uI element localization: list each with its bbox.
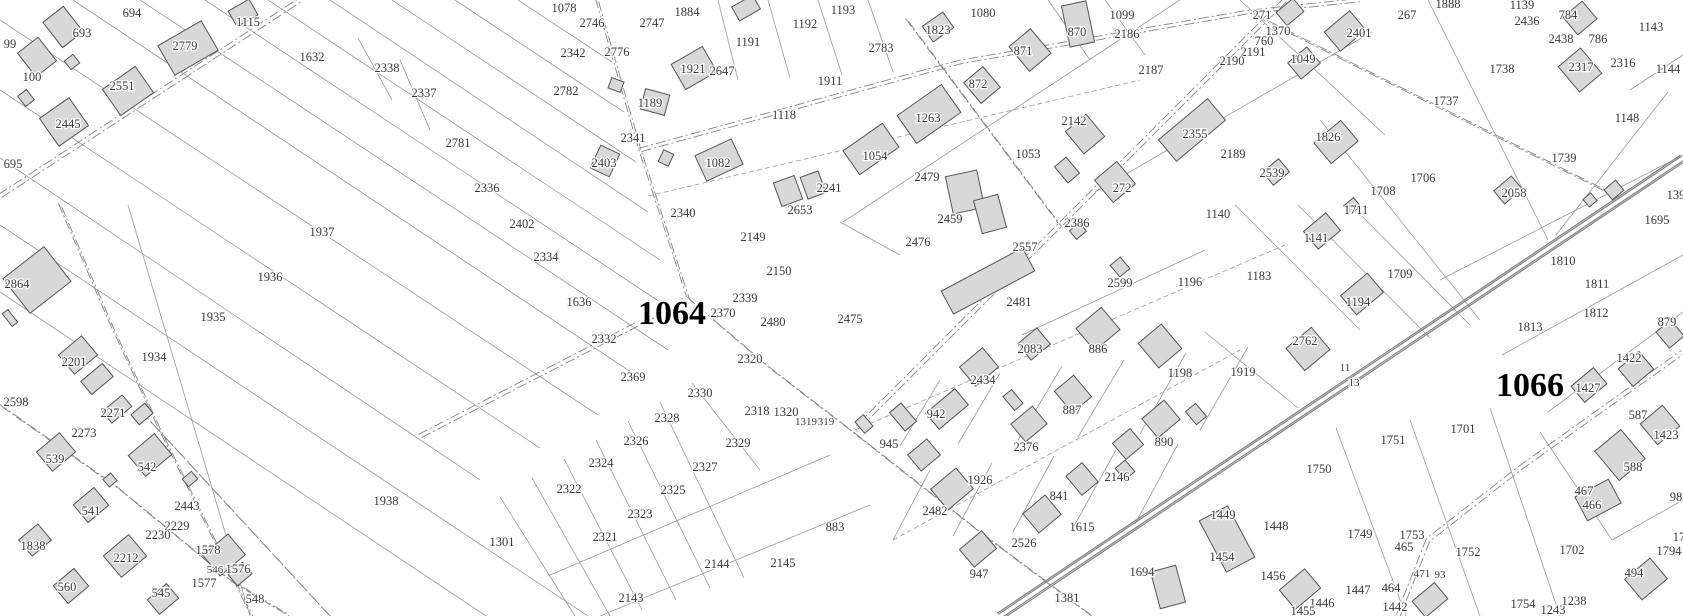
parcel-number-label: 2271 (101, 406, 126, 420)
block-number-label: 1066 (1496, 367, 1564, 404)
parcel-number-label: 2526 (1012, 536, 1037, 550)
parcel-number-label: 2332 (592, 332, 617, 346)
parcel-number-label: 871 (1014, 44, 1033, 58)
parcel-number-label: 2747 (640, 16, 665, 30)
parcel-number-label: 2230 (146, 528, 171, 542)
parcel-number-label: 272 (1113, 181, 1132, 195)
parcel-number-label: 886 (1089, 342, 1108, 356)
parcel-number-label: 786 (1589, 32, 1608, 46)
parcel-number-label: 2325 (661, 483, 686, 497)
parcel-number-label: 2438 (1549, 32, 1574, 46)
parcel-number-label: 100 (23, 70, 42, 84)
parcel-number-label: 1823 (926, 23, 951, 37)
parcel-number-label: 471 (1414, 568, 1431, 580)
parcel-number-label: 2149 (741, 230, 766, 244)
parcel-number-label: 2323 (628, 507, 653, 521)
parcel-number-label: 2339 (733, 291, 758, 305)
cadastral-map-canvas[interactable]: 6946931115992779100163223382551244569510… (0, 0, 1683, 616)
parcel-number-label: 2143 (619, 591, 644, 605)
parcel-number-label: 2320 (738, 352, 763, 366)
parcel-number-label: 2327 (693, 460, 718, 474)
parcel-number-label: 1455 (1291, 604, 1316, 616)
parcel-number-label: 2318 (745, 404, 770, 418)
parcel-number-label: 2328 (655, 411, 680, 425)
parcel-number-label: 2142 (1062, 114, 1087, 128)
parcel-number-label: 587 (1629, 408, 1648, 422)
parcel-number-label: 841 (1050, 489, 1069, 503)
parcel-number-label: 1301 (490, 535, 515, 549)
parcel-number-label: 2481 (1007, 295, 1032, 309)
parcel-number-label: 1141 (1304, 231, 1329, 245)
parcel-number-label: 2539 (1260, 166, 1285, 180)
parcel-number-label: 1454 (1210, 550, 1236, 564)
parcel-number-label: 1926 (968, 473, 993, 487)
parcel-number-label: 1938 (374, 494, 399, 508)
parcel-number-label: 1238 (1562, 594, 1587, 608)
parcel-number-label: 2190 (1220, 54, 1245, 68)
parcel-number-label: 784 (1559, 8, 1579, 22)
parcel-number-label: 2401 (1347, 26, 1372, 40)
parcel-number-label: 1737 (1434, 94, 1459, 108)
parcel-number-label: 1811 (1585, 277, 1610, 291)
parcel-number-label: 539 (46, 452, 65, 466)
parcel-number-label: 2782 (554, 84, 579, 98)
parcel-number-label: 2783 (869, 41, 894, 55)
parcel-number-label: 2329 (726, 436, 751, 450)
parcel-number-label: 1911 (818, 74, 843, 88)
parcel-number-label: 1578 (196, 543, 221, 557)
parcel-number-label: 1935 (201, 310, 226, 324)
parcel-number-label: 1263 (916, 111, 941, 125)
parcel-number-label: 1615 (1070, 520, 1095, 534)
parcel-number-label: 548 (246, 592, 265, 606)
parcel-number-label: 464 (1382, 581, 1402, 595)
parcel-number-label: 2864 (5, 277, 31, 291)
parcel-number-label: 2316 (1611, 56, 1636, 70)
parcel-number-label: 2201 (62, 355, 87, 369)
parcel-number-label: 2273 (72, 426, 97, 440)
parcel-number-label: 1423 (1654, 428, 1679, 442)
parcel-number-label: 1706 (1411, 171, 1436, 185)
parcel-number-label: 1198 (1168, 366, 1193, 380)
parcel-number-label: 760 (1255, 34, 1274, 48)
parcel-number-label: 93 (1435, 569, 1447, 581)
parcel-number-label: 2342 (561, 46, 586, 60)
parcel-number-label: 1191 (736, 35, 761, 49)
parcel-number-label: 1632 (300, 50, 325, 64)
parcel-number-label: 267 (1398, 8, 1417, 22)
parcel-number-label: 1708 (1371, 184, 1396, 198)
parcel-number-label: 1636 (567, 295, 592, 309)
parcel-number-label: 1702 (1560, 543, 1585, 557)
parcel-number-label: 2479 (915, 170, 940, 184)
parcel-number-label: 1838 (21, 539, 46, 553)
parcel-number-label: 2330 (688, 386, 713, 400)
parcel-number-label: 17 (1673, 530, 1683, 544)
parcel-number-label: 1937 (310, 225, 335, 239)
parcel-number-label: 2144 (705, 557, 731, 571)
parcel-number-label: 1709 (1388, 267, 1413, 281)
cadastral-map-svg: 6946931115992779100163223382551244569510… (0, 0, 1683, 616)
parcel-number-label: 1754 (1511, 597, 1537, 611)
parcel-number-label: 883 (826, 520, 845, 534)
parcel-number-label: 2434 (971, 373, 997, 387)
parcel-number-label: 1751 (1381, 433, 1406, 447)
parcel-number-label: 2340 (671, 206, 696, 220)
parcel-number-label: 467 (1575, 484, 1594, 498)
parcel-number-label: 11 (1340, 362, 1351, 374)
parcel-number-label: 2443 (175, 499, 200, 513)
parcel-number-label: 2324 (589, 456, 615, 470)
parcel-number-label: 2145 (771, 556, 796, 570)
parcel-number-label: 1118 (772, 108, 796, 122)
parcel-number-label: 1442 (1383, 600, 1408, 614)
parcel-number-label: 942 (927, 407, 946, 421)
parcel-number-label: 1576 (226, 562, 251, 576)
parcel-number-label: 2482 (923, 504, 948, 518)
parcel-number-label: 1054 (863, 149, 889, 163)
parcel-number-label: 1739 (1552, 151, 1577, 165)
parcel-number-label: 1794 (1657, 544, 1683, 558)
parcel-number-label: 1078 (552, 1, 577, 15)
parcel-number-label: 1812 (1584, 306, 1609, 320)
parcel-number-label: 1826 (1316, 130, 1341, 144)
parcel-number-label: 1888 (1436, 0, 1461, 11)
parcel-number-label: 2187 (1139, 63, 1164, 77)
parcel-number-label: 695 (4, 157, 23, 171)
parcel-number-label: 98 (1670, 490, 1683, 504)
parcel-number-label: 2322 (557, 482, 582, 496)
parcel-number-label: 947 (970, 567, 989, 581)
parcel-number-label: 1449 (1211, 508, 1236, 522)
parcel-number-label: 2476 (906, 235, 931, 249)
parcel-number-label: 2779 (173, 39, 198, 53)
parcel-number-label: 2459 (938, 212, 963, 226)
parcel-number-label: 2336 (475, 181, 500, 195)
parcel-number-label: 2083 (1018, 342, 1043, 356)
parcel-number-label: 2058 (1502, 186, 1527, 200)
parcel-number-label: 2746 (580, 16, 605, 30)
parcel-number-label: 1319 (795, 416, 818, 428)
parcel-number-label: 2598 (4, 395, 29, 409)
parcel-number-label: 2341 (621, 131, 646, 145)
parcel-number-label: 1456 (1261, 569, 1286, 583)
parcel-number-label: 694 (123, 6, 143, 20)
parcel-number-label: 1738 (1490, 62, 1515, 76)
parcel-number-label: 13 (1349, 377, 1361, 389)
parcel-number-label: 1694 (1130, 565, 1156, 579)
parcel-number-label: 1695 (1645, 213, 1670, 227)
parcel-number-label: 1448 (1264, 519, 1289, 533)
parcel-number-label: 2557 (1013, 240, 1038, 254)
parcel-number-label: 945 (880, 437, 899, 451)
parcel-number-label: 879 (1658, 315, 1677, 329)
parcel-number-label: 2150 (767, 264, 792, 278)
parcel-number-label: 2337 (412, 86, 437, 100)
parcel-number-label: 541 (82, 504, 101, 518)
parcel-number-label: 1936 (258, 270, 283, 284)
parcel-number-label: 2334 (534, 250, 560, 264)
parcel-number-label: 887 (1063, 403, 1082, 417)
parcel-number-label: 1080 (971, 6, 996, 20)
parcel-number-label: 1082 (706, 156, 731, 170)
parcel-number-label: 2776 (605, 45, 630, 59)
block-number-label: 1064 (638, 295, 706, 332)
parcel-number-label: 1183 (1247, 269, 1272, 283)
parcel-number-label: 2445 (56, 117, 81, 131)
parcel-number-label: 693 (73, 26, 92, 40)
parcel-number-label: 542 (138, 460, 157, 474)
parcel-number-label: 890 (1155, 435, 1174, 449)
parcel-number-label: 1749 (1348, 527, 1373, 541)
parcel-number-label: 1577 (192, 576, 217, 590)
parcel-number-label: 2376 (1014, 440, 1039, 454)
parcel-number-label: 319 (818, 416, 835, 428)
parcel-number-label: 99 (4, 37, 17, 51)
parcel-number-label: 2386 (1065, 216, 1090, 230)
parcel-number-label: 2369 (621, 370, 646, 384)
parcel-number-label: 1192 (793, 17, 818, 31)
parcel-number-label: 494 (1625, 566, 1645, 580)
parcel-number-label: 560 (58, 580, 77, 594)
parcel-number-label: 1115 (236, 15, 260, 29)
parcel-number-label: 1711 (1344, 203, 1369, 217)
parcel-number-label: 1099 (1110, 8, 1135, 22)
parcel-number-label: 1921 (681, 62, 706, 76)
parcel-number-label: 2781 (446, 136, 471, 150)
parcel-number-label: 1750 (1307, 462, 1332, 476)
parcel-number-label: 2480 (761, 315, 786, 329)
parcel-number-label: 1919 (1231, 365, 1256, 379)
parcel-number-label: 1701 (1451, 422, 1476, 436)
parcel-number-label: 2436 (1515, 14, 1540, 28)
parcel-number-label: 870 (1068, 25, 1087, 39)
parcel-number-label: 1140 (1206, 207, 1231, 221)
parcel-number-label: 2370 (711, 306, 736, 320)
parcel-number-label: 2189 (1221, 147, 1246, 161)
parcel-number-label: 1422 (1617, 351, 1642, 365)
parcel-number-label: 2317 (1569, 60, 1594, 74)
parcel-number-label: 1813 (1518, 320, 1543, 334)
parcel-number-label: 2338 (375, 61, 400, 75)
parcel-number-label: 2403 (592, 156, 617, 170)
parcel-number-label: 546 (207, 564, 224, 576)
parcel-number-label: 1049 (1291, 52, 1316, 66)
parcel-number-label: 1148 (1615, 111, 1640, 125)
parcel-number-label: 2321 (593, 530, 618, 544)
parcel-number-label: 271 (1253, 8, 1272, 22)
parcel-number-label: 1144 (1656, 62, 1681, 76)
parcel-number-label: 2241 (817, 181, 842, 195)
parcel-number-label: 545 (152, 586, 171, 600)
parcel-number-label: 2402 (510, 217, 535, 231)
parcel-number-label: 1934 (142, 350, 168, 364)
parcel-number-label: 2326 (624, 434, 649, 448)
parcel-number-label: 466 (1583, 498, 1602, 512)
parcel-number-label: 2355 (1183, 127, 1208, 141)
parcel-number-label: 588 (1624, 460, 1643, 474)
parcel-number-label: 2146 (1105, 470, 1130, 484)
parcel-number-label: 465 (1395, 540, 1414, 554)
parcel-number-label: 1189 (638, 96, 663, 110)
parcel-number-label: 2599 (1108, 276, 1133, 290)
parcel-number-label: 1193 (831, 3, 856, 17)
parcel-number-label: 2551 (110, 79, 135, 93)
parcel-number-label: 2186 (1115, 27, 1140, 41)
parcel-number-label: 2647 (710, 64, 735, 78)
parcel-number-label: 2212 (114, 551, 139, 565)
parcel-number-label: 1427 (1576, 381, 1601, 395)
parcel-number-label: 1143 (1639, 20, 1664, 34)
parcel-number-label: 2653 (788, 203, 813, 217)
parcel-number-label: 1196 (1178, 275, 1203, 289)
parcel-number-label: 1381 (1055, 591, 1080, 605)
parcel-number-label: 1053 (1016, 147, 1041, 161)
parcel-number-label: 1447 (1346, 583, 1371, 597)
parcel-number-label: 139 (1667, 188, 1683, 202)
parcel-number-label: 2475 (838, 312, 863, 326)
parcel-number-label: 1139 (1510, 0, 1535, 12)
parcel-number-label: 872 (969, 77, 988, 91)
parcel-number-label: 2762 (1293, 334, 1318, 348)
parcel-number-label: 1884 (675, 5, 701, 19)
parcel-number-label: 1810 (1551, 254, 1576, 268)
parcel-number-label: 1194 (1346, 295, 1371, 309)
parcel-number-label: 1752 (1456, 545, 1481, 559)
